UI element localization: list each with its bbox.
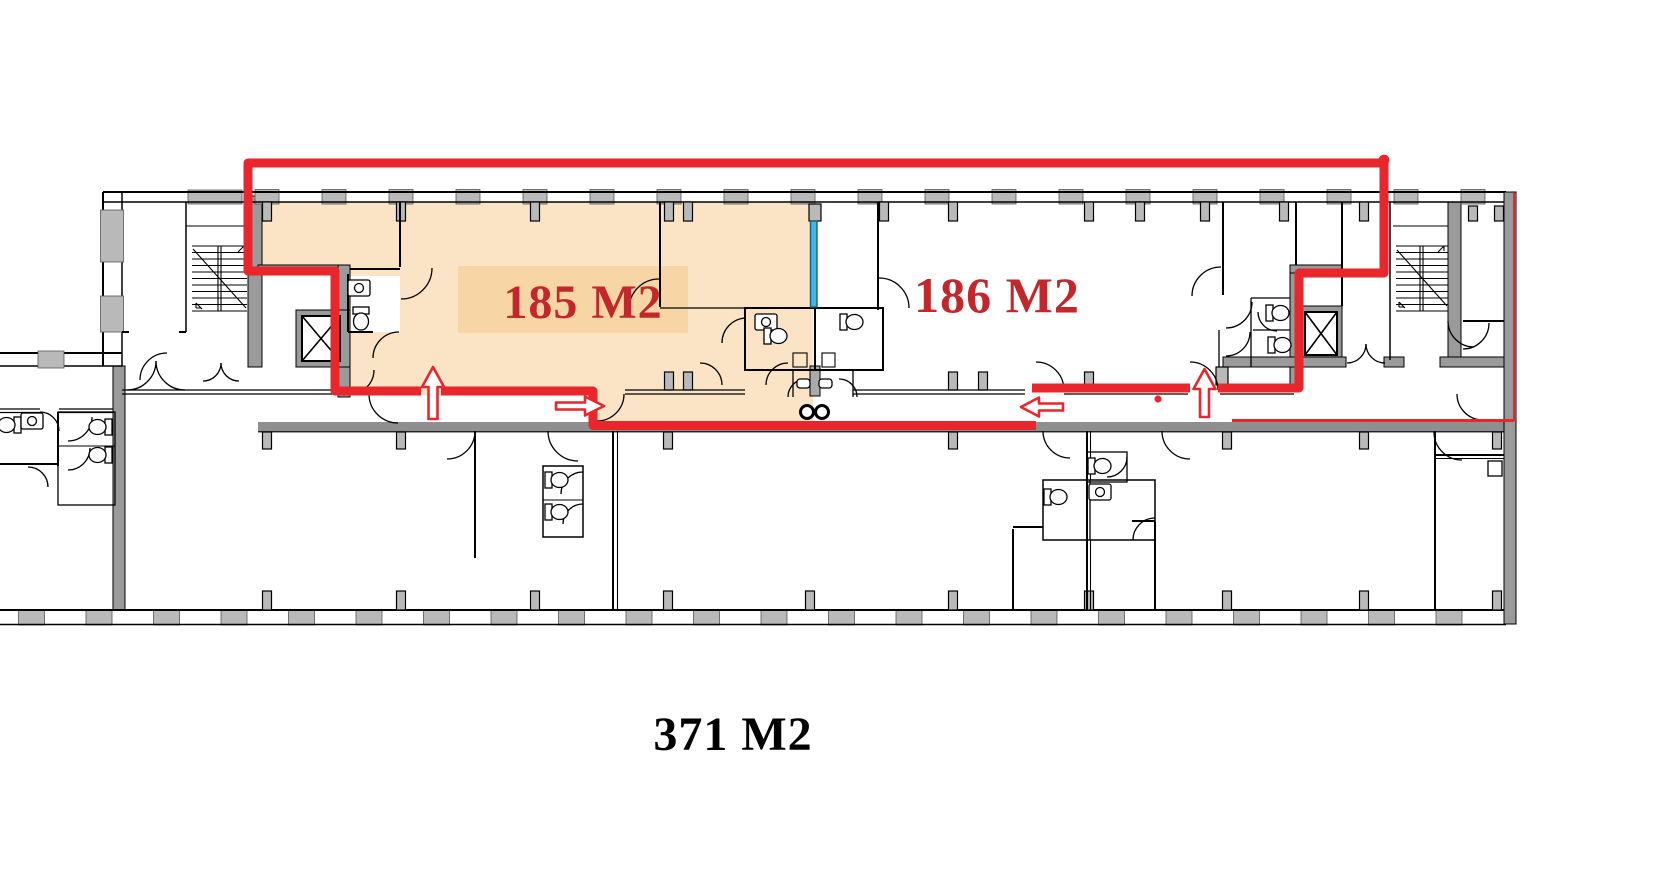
column-stub [684,202,693,221]
sink-icon [1089,484,1111,500]
column-stub [1136,202,1145,221]
door-arc [28,467,48,487]
window-sill [694,610,720,626]
right-lobby-wall-c [1440,357,1504,367]
stall [822,353,835,367]
door-arc [140,353,167,380]
toilet-icon [1088,458,1111,474]
basin-icon [801,406,814,419]
urinal-icon [797,379,810,388]
window-sill [19,610,45,626]
door-arc [447,431,475,459]
column-stub [1493,591,1502,610]
marker-dot [1154,395,1161,402]
window-sill [86,610,112,626]
fixture [1488,461,1502,476]
toilet-icon [545,504,568,520]
door-arc [221,363,239,381]
window-sill [1031,610,1057,626]
door-arc [1192,267,1221,296]
door-arc [68,417,92,441]
door-arc [68,448,90,470]
window-sill [896,610,922,626]
column-stub [880,202,889,221]
toilet-icon [89,419,112,435]
column-stub [1360,591,1369,610]
column-stub [1360,432,1369,449]
column-stub [809,204,821,221]
column-stub [1493,432,1502,449]
column-stub [1360,202,1369,221]
urinal-icon [819,379,832,388]
column-stub [1085,202,1094,221]
door-arc [156,361,185,390]
wing-window [38,351,64,368]
column-stub [664,591,673,610]
bottom-wall-windows [19,610,1463,626]
boundary-endpoint-cap [1379,155,1390,166]
toilet-icon [0,417,21,433]
column-stub [1216,367,1228,385]
window-sill [221,610,247,626]
column-stub [684,372,693,390]
toilet-icon [545,472,568,488]
column-stub [397,432,406,449]
proposed-partition [809,204,821,307]
stairwell-right [1393,226,1448,311]
sink-icon [21,413,43,429]
door-arc [1226,302,1252,328]
window-sill [1436,610,1462,626]
column-stub [1085,591,1094,610]
door-arc [127,361,156,390]
column-stub [1495,206,1504,221]
column-stub [263,432,272,449]
column-stub [263,591,272,610]
window-sill [154,610,180,626]
window-sill [424,610,450,626]
basin-icon [816,406,829,419]
column-stub [1223,432,1232,449]
toilet-icon [353,307,369,330]
sink-icon [348,280,370,296]
door-arc [203,363,221,381]
door-arc [369,394,398,423]
area-185-label: 185 M2 [503,276,662,329]
area-186-label: 186 M2 [914,267,1080,323]
column-stub [949,372,958,390]
toilet-icon [840,314,863,330]
elevator-right-icon [1305,312,1337,355]
column-stub [949,202,958,221]
floor-plan-drawing: 185 M2 186 M2 371 M2 [0,0,1661,895]
entrance-arrow-up-right [1194,369,1216,417]
floor-plan-canvas: 185 M2 186 M2 371 M2 [0,0,1661,895]
partition [1013,527,1043,610]
column-stub [806,591,815,610]
window-sill [289,610,315,626]
window-sill [1099,610,1125,626]
column-stub [263,202,272,221]
door-arc [1457,394,1483,420]
column-stub [979,372,988,390]
door-arc [1366,344,1385,363]
door-arc [1162,431,1190,459]
entrance-arrow-left [1021,398,1063,417]
door-arc [548,431,578,461]
stairwell-left [186,226,247,311]
door-arc [1226,332,1250,356]
column-stub [949,591,958,610]
toilet-icon [1044,489,1067,505]
right-stair-wall [1448,202,1461,360]
column-stub [1469,206,1478,221]
window-sill [356,610,382,626]
window-sill [964,610,990,626]
window-sill [1234,610,1260,626]
column-stub [1201,202,1210,221]
toilet-icon [764,328,787,344]
window-sill [1301,610,1327,626]
wing-corridor-wall [0,409,113,413]
partition [1132,521,1155,610]
door-arc [879,278,909,308]
left-wall-window [101,210,124,262]
door-arc [1347,344,1366,363]
column-stub [665,372,674,390]
window-sill [1369,610,1395,626]
toilet-icon [1266,305,1289,321]
right-lobby-wall-a [1223,357,1346,367]
area-total-label: 371 M2 [653,708,812,761]
window-sill [626,610,652,626]
proposed-partition-line [811,221,818,307]
window-sill [559,610,585,626]
window-sill [1166,610,1192,626]
door-arc [1463,323,1489,349]
door-arc [1043,431,1070,458]
column-stub [531,591,540,610]
toilet-icon [89,447,112,463]
column-stub [1223,591,1232,610]
column-stub [1280,202,1289,221]
column-stub [531,202,540,221]
column-stub [665,202,674,221]
column-stub [949,432,958,449]
left-wall-window [101,296,124,332]
toilet-icon [1268,337,1291,353]
window-sill [829,610,855,626]
column-stub [397,591,406,610]
window-sill [761,610,787,626]
column-stub [664,432,673,449]
window-sill [491,610,517,626]
right-lobby-wall-b [1384,357,1404,367]
